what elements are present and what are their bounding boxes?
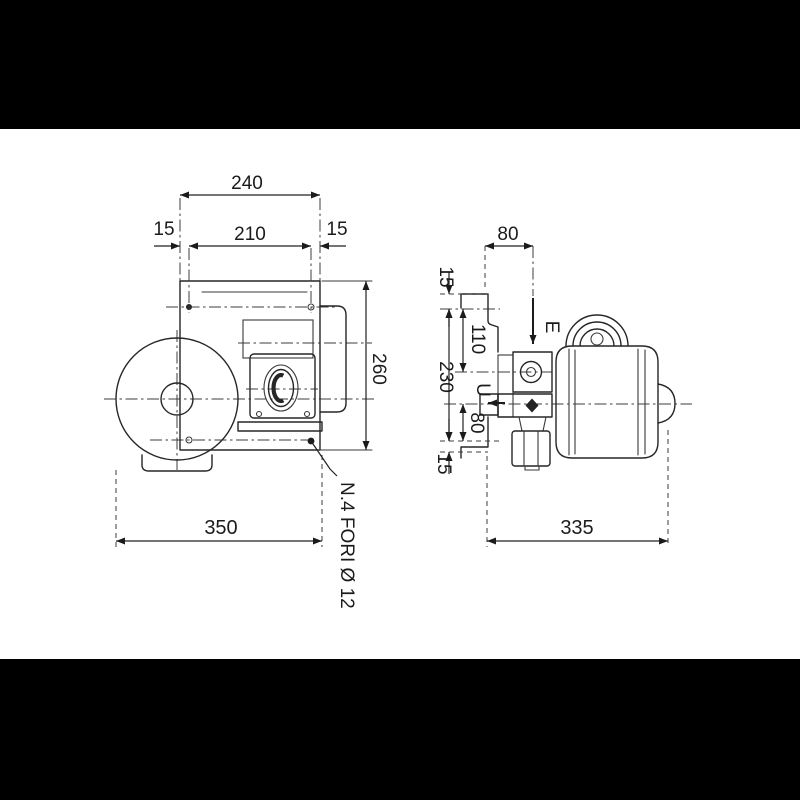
dim-hole-spacing-label: 210 xyxy=(234,224,266,245)
dim-flange-top-label: 15 xyxy=(435,266,456,287)
dim-plate-height-label: 260 xyxy=(368,353,389,385)
dim-overall-length-label: 350 xyxy=(204,517,237,539)
outlet-label: U xyxy=(472,383,493,397)
dim-hole-edge-left-label: 15 xyxy=(153,219,174,240)
inlet-label: E xyxy=(541,321,562,334)
holes-note-label: N.4 FORI Ø 12 xyxy=(336,482,357,609)
dim-inlet-offset-label: 80 xyxy=(497,224,518,245)
dim-inlet-height-label: 110 xyxy=(467,324,488,354)
screenshot: 240 15 210 15 260 350 N.4 FORI Ø 12 xyxy=(0,0,800,800)
dim-hole-edge-right-label: 15 xyxy=(326,219,347,240)
dim-outlet-height-label: 80 xyxy=(466,412,487,433)
dim-holes-vertical-spacing-label: 230 xyxy=(435,361,456,393)
dim-flange-bottom-label: 15 xyxy=(433,453,454,474)
pump-technical-drawing: 240 15 210 15 260 350 N.4 FORI Ø 12 xyxy=(0,0,800,800)
drawing-sheet xyxy=(0,129,800,659)
dim-plate-width-label: 240 xyxy=(231,173,263,194)
dim-overall-length-side-label: 335 xyxy=(560,517,593,539)
